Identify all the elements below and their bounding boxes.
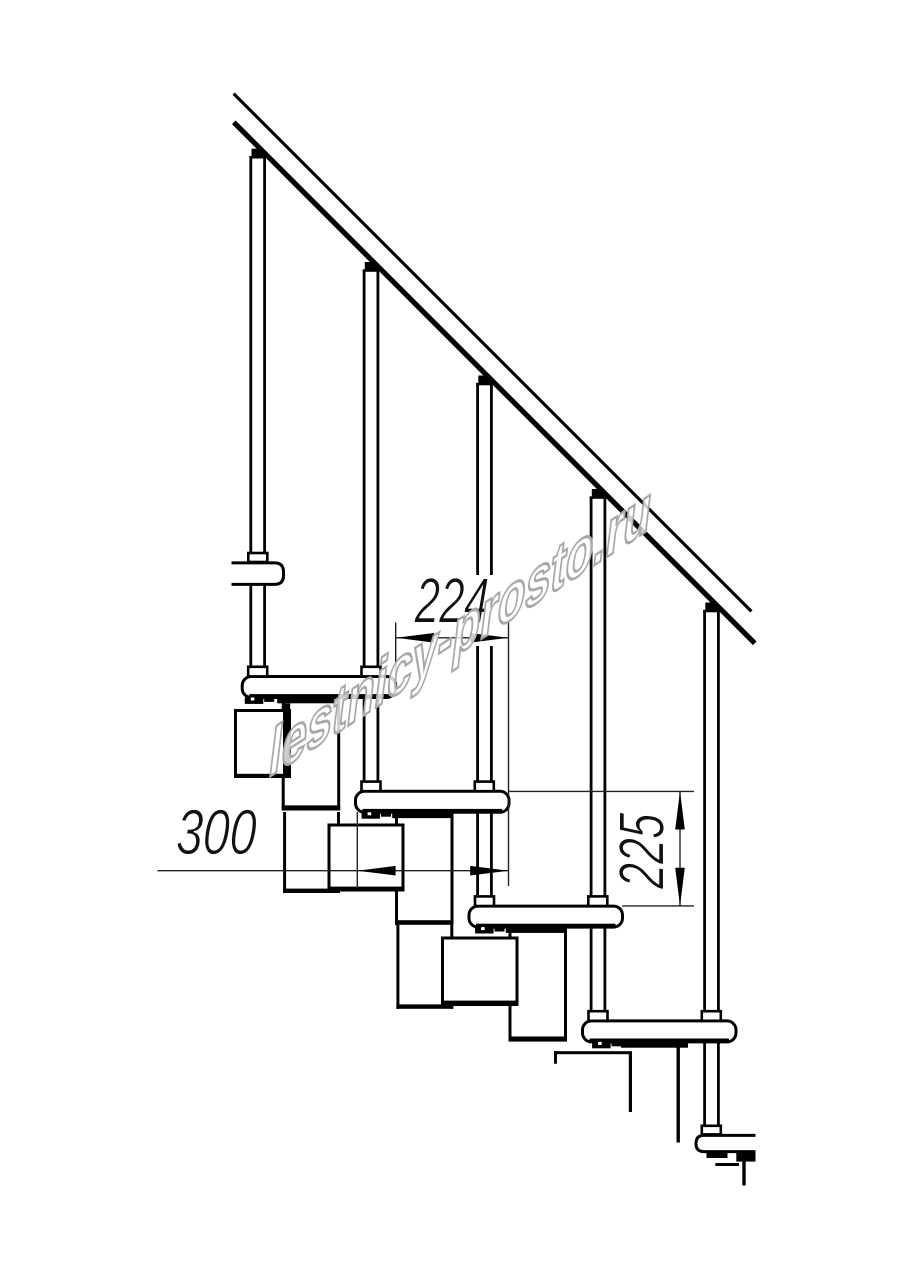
- svg-text:225: 225: [606, 812, 678, 890]
- svg-text:300: 300: [175, 796, 258, 867]
